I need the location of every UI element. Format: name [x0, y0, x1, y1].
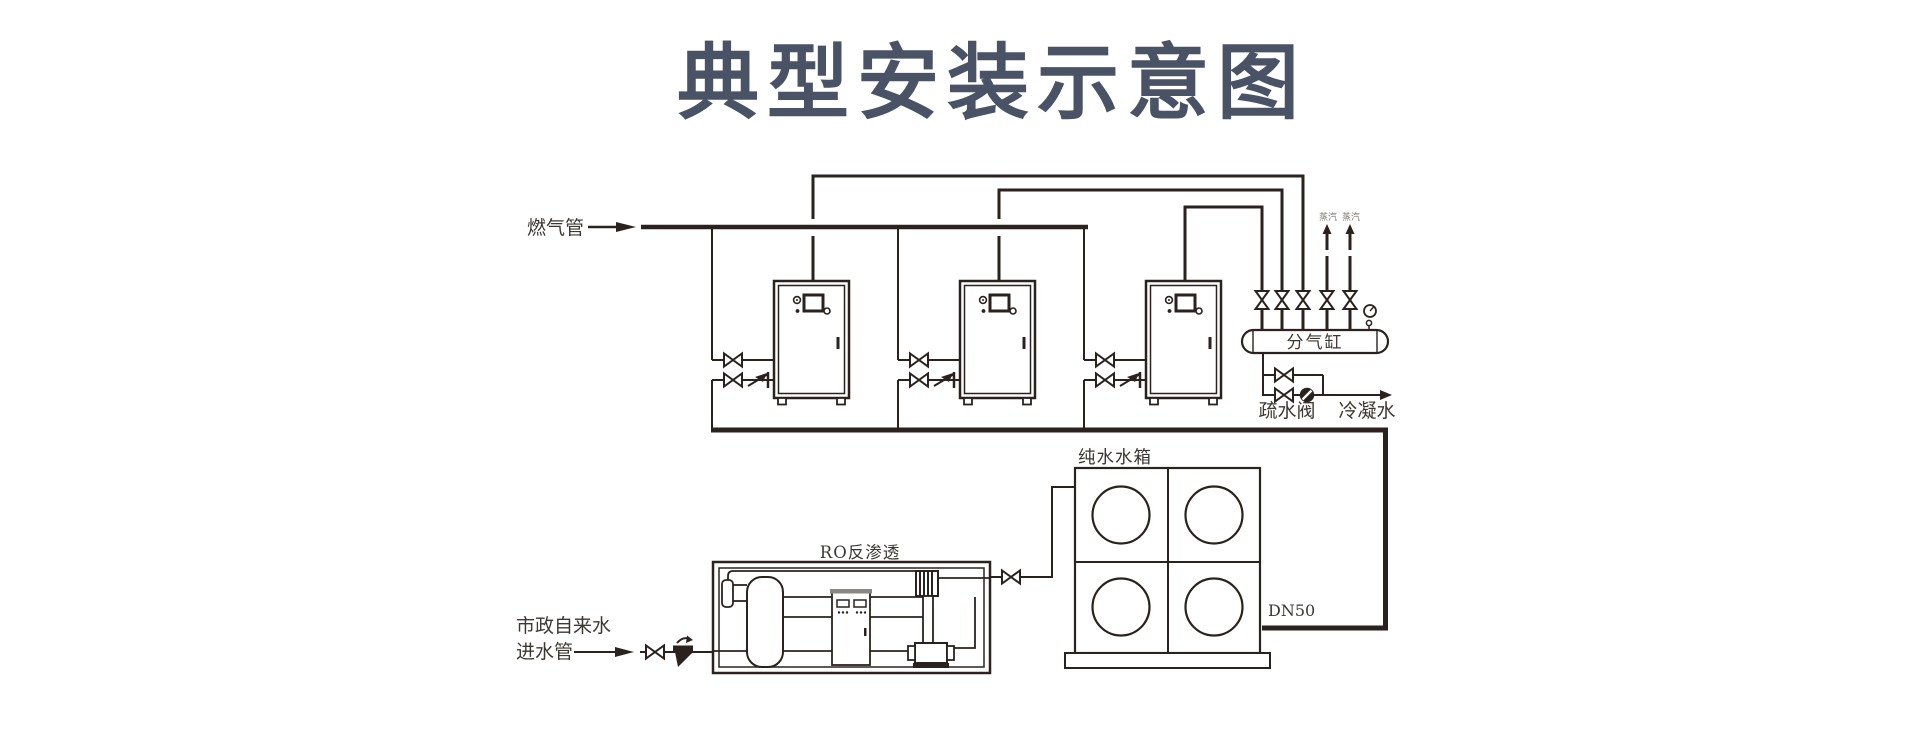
- steam-manifold: 分气缸: [1242, 330, 1388, 353]
- pure-water-tank: 纯水水箱: [1065, 448, 1270, 668]
- manifold-valve-icon: [1297, 291, 1310, 309]
- steam-lines: [813, 176, 1350, 330]
- municipal-water-inlet: 市政自来水 进水管: [516, 615, 713, 667]
- manifold-label: 分气缸: [1287, 332, 1344, 353]
- trap-valve-label: 疏水阀: [1258, 400, 1315, 422]
- manifold-valve-icon: [1321, 291, 1334, 309]
- municipal-label-line1: 市政自来水: [516, 615, 611, 637]
- manifold-valve-icon: [1256, 291, 1269, 309]
- bypass-valve-icon: [1275, 369, 1293, 382]
- manifold-valve-icon: [1276, 291, 1289, 309]
- ro-control-cabinet: [830, 589, 872, 665]
- steam-generator-3: [1146, 281, 1221, 405]
- boiler3-gas-water-connections: [1084, 229, 1146, 429]
- diagram-canvas: 燃气管 蒸汽 蒸汽: [0, 0, 1920, 730]
- gas-pipe-label: 燃气管: [527, 217, 584, 239]
- boiler1-gas-water-connections: [712, 229, 774, 429]
- strainer-icon: [673, 636, 693, 668]
- condensate-label: 冷凝水: [1338, 400, 1395, 422]
- ro-to-tank-pipe: [990, 487, 1075, 584]
- ro-outlet-valve-icon: [1002, 571, 1020, 584]
- steam-generator-2: [960, 281, 1035, 405]
- manifold-valve-icon: [1344, 291, 1357, 309]
- ro-unit: RO反渗透: [713, 543, 990, 673]
- ro-membrane-icon: [916, 571, 938, 596]
- installation-diagram: 典型安装示意图: [0, 0, 1920, 730]
- condensate-drain: 疏水阀 冷凝水: [1258, 353, 1395, 422]
- tank-label: 纯水水箱: [1078, 448, 1152, 468]
- condensate-arrow-icon: [1380, 390, 1392, 400]
- ro-unit-label: RO反渗透: [820, 543, 900, 562]
- gas-supply-line: 燃气管: [527, 217, 1088, 239]
- steam-generator-1: [774, 281, 849, 405]
- softener-tank-icon: [747, 577, 783, 667]
- boiler2-gas-water-connections: [898, 229, 960, 429]
- inlet-flow-arrow-icon: [615, 647, 634, 657]
- steam-label-2: 蒸汽: [1342, 211, 1360, 223]
- inlet-valve-icon: [646, 646, 664, 659]
- steam-up-arrow-icon: [1346, 224, 1355, 234]
- pressure-gauge-icon: [1364, 305, 1376, 330]
- pipe-size-label: DN50: [1268, 601, 1315, 620]
- gas-flow-arrow-icon: [616, 222, 636, 232]
- ro-manometer-loop-icon: [722, 580, 733, 607]
- steam-label-1: 蒸汽: [1319, 211, 1337, 223]
- steam-up-arrow-icon: [1323, 224, 1332, 234]
- municipal-label-line2: 进水管: [516, 641, 573, 663]
